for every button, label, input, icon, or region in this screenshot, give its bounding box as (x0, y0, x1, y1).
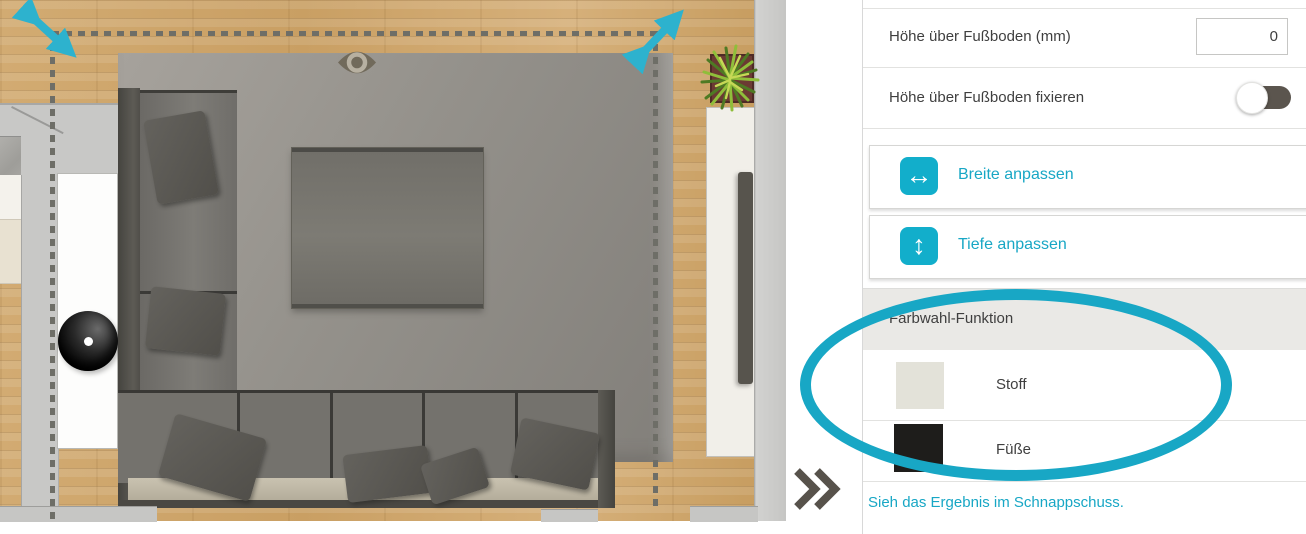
adjust-width-button[interactable]: ↔ Breite anpassen (869, 145, 1306, 209)
wall-bottom-middle (541, 509, 598, 522)
height-above-floor-input[interactable] (1196, 18, 1288, 55)
row-separator (863, 8, 1306, 9)
floor-lamp-highlight (84, 337, 93, 346)
sofa-arm-right (598, 390, 615, 508)
row-separator (863, 481, 1306, 482)
feet-color-label: Füße (996, 441, 1031, 458)
nook-shelf (0, 175, 21, 219)
coffee-table[interactable] (292, 148, 483, 308)
sofa-pillow (145, 286, 226, 356)
toggle-knob (1236, 82, 1268, 114)
sofa-seat-divider (330, 393, 333, 480)
width-adjust-icon: ↔ (900, 157, 938, 195)
resize-handle-top-left[interactable] (8, 0, 92, 70)
resize-handle-top-right[interactable] (618, 0, 702, 74)
room-planner-app: Höhe über Fußboden (mm) Höhe über Fußbod… (0, 0, 1306, 534)
adjust-depth-label: Tiefe anpassen (958, 236, 1067, 254)
nook-sideboard (0, 219, 21, 284)
row-separator (863, 67, 1306, 68)
depth-adjust-icon: ↕ (900, 227, 938, 265)
collapse-panel-button[interactable] (793, 463, 841, 515)
fabric-color-swatch[interactable] (896, 362, 944, 409)
selection-edge-top (52, 31, 658, 36)
color-function-section-header: Farbwahl-Funktion (863, 288, 1306, 352)
fix-height-toggle[interactable] (1238, 82, 1291, 113)
tv-screen (738, 172, 753, 384)
properties-panel: Höhe über Fußboden (mm) Höhe über Fußbod… (862, 0, 1306, 534)
wall-bottom-right (690, 506, 758, 522)
feet-color-row[interactable]: Füße (863, 421, 1306, 481)
sofa-cushion (140, 193, 237, 294)
snapshot-result-link[interactable]: Sieh das Ergebnis im Schnappschuss. (868, 494, 1124, 511)
floorplan-canvas (0, 0, 862, 534)
fix-height-label: Höhe über Fußboden fixieren (889, 88, 1084, 108)
wall-bottom-left (0, 506, 157, 522)
sofa-front-edge (118, 500, 615, 508)
fabric-color-label: Stoff (996, 376, 1027, 393)
adjust-width-label: Breite anpassen (958, 166, 1074, 184)
eye-icon[interactable] (336, 48, 378, 77)
row-separator (863, 128, 1306, 129)
potted-plant[interactable] (696, 40, 760, 114)
height-above-floor-label: Höhe über Fußboden (mm) (889, 27, 1071, 47)
adjust-depth-button[interactable]: ↕ Tiefe anpassen (869, 215, 1306, 279)
selection-edge-left (50, 31, 55, 523)
selection-edge-right (653, 31, 658, 509)
color-function-header-label: Farbwahl-Funktion (889, 310, 1013, 327)
sofa-pillow (342, 445, 432, 503)
feet-color-swatch[interactable] (894, 424, 943, 472)
fabric-color-row[interactable]: Stoff (863, 350, 1306, 420)
